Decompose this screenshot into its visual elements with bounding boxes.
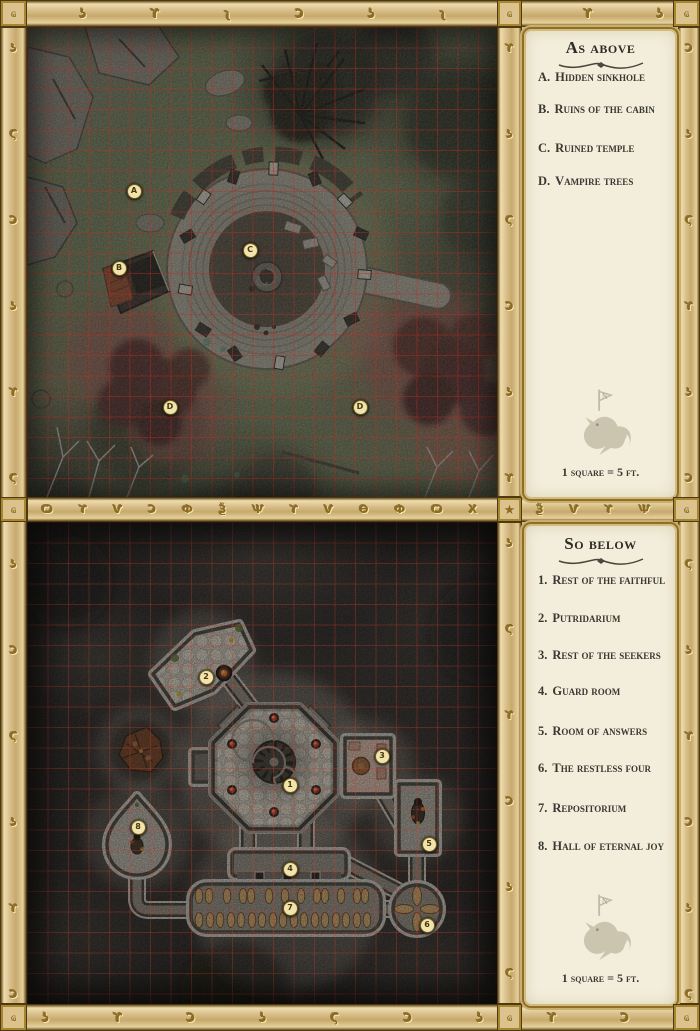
dragon-sigil-icon: N <box>571 890 631 962</box>
divider-below: ʖ Ϛ ϒ Ɔ ʖ Ϛ ϒ <box>497 522 522 1004</box>
corner-emblem-br: ҩ <box>673 1004 700 1031</box>
legend-item-d: D.Vampire trees <box>538 174 673 189</box>
map-marker-D: D <box>353 400 368 415</box>
scale-note-below: 1 square = 5 ft. <box>524 971 677 986</box>
corner-emblem-ml: ҩ <box>0 497 27 522</box>
panel-title-above: As above <box>524 38 677 58</box>
dungeon-map: 12345678 <box>27 522 497 1004</box>
map-marker-B: B <box>112 261 127 276</box>
corner-emblem-mr: ҩ <box>673 497 700 522</box>
map-marker-1: 1 <box>283 778 298 793</box>
map-marker-3: 3 <box>375 749 390 764</box>
map-marker-7: 7 <box>283 901 298 916</box>
legend-item-6: 6.The restless four <box>538 761 673 776</box>
map-marker-8: 8 <box>131 820 146 835</box>
map-marker-2: 2 <box>199 670 214 685</box>
map-marker-C: C <box>243 243 258 258</box>
legend-item-2: 2.Putridarium <box>538 611 673 626</box>
legend-item-8: 8.Hall of eternal joy <box>538 839 673 854</box>
top-runes: Ɔ ʅ ʖ ϒ ʅ Ɔ ʖ ʅ Ɔ ϒ ʖ ʅ <box>1 1 699 26</box>
legend-item-5: 5.Room of answers <box>538 724 673 739</box>
map-marker-A: A <box>127 184 142 199</box>
map-marker-D: D <box>163 400 178 415</box>
legend-item-3: 3.Rest of the seekers <box>538 648 673 663</box>
legend-item-4: 4.Guard room <box>538 684 673 699</box>
divider-above-runes: ϒ ʖ Ϛ Ɔ ʖ ϒ Ϛ <box>498 28 521 496</box>
overland-map-art <box>27 27 497 497</box>
frame-top-band: Ɔ ʅ ʖ ϒ ʅ Ɔ ʖ ʅ Ɔ ϒ ʖ ʅ <box>0 0 700 27</box>
legend-item-b: B.Ruins of the cabin <box>538 102 673 117</box>
corner-emblem-tm: ҩ <box>497 0 522 27</box>
legend-panel-above: As above A.Hidden sinkhole B.Ruins of th… <box>522 27 679 501</box>
title-flourish <box>553 555 649 567</box>
bottom-runes: Ͻ ʖ ϒ Ɔ ʖ Ϛ Ɔ ʖ ϒ Ɔ ʖ <box>1 1005 699 1030</box>
overland-map: ABCDD <box>27 27 497 497</box>
legend-item-c: C.Ruined temple <box>538 141 673 156</box>
legend-item-7: 7.Repositorium <box>538 801 673 816</box>
corner-emblem-bl: ҩ <box>0 1004 27 1031</box>
corner-emblem-tl: ҩ <box>0 0 27 27</box>
star-emblem: ★ <box>497 497 522 522</box>
corner-emblem-bm: ҩ <box>497 1004 522 1031</box>
frame-bottom-band: Ͻ ʖ ϒ Ɔ ʖ Ϛ Ɔ ʖ ϒ Ɔ ʖ <box>0 1004 700 1031</box>
middle-runes: Ѻ Х Ф ʎ Ѻ ϒ Ѵ Ɔ Ф Ѯ Ѱ ϒ Ѵ Ѳ Ф Ѻ Х ʎ Ѯ Ѵ … <box>28 498 677 521</box>
map-marker-6: 6 <box>420 918 435 933</box>
map-marker-5: 5 <box>422 837 437 852</box>
svg-text:N: N <box>601 897 607 906</box>
scale-note-above: 1 square = 5 ft. <box>524 465 677 480</box>
corner-emblem-tr: ҩ <box>673 0 700 27</box>
divider-below-runes: ʖ Ϛ ϒ Ɔ ʖ Ϛ ϒ <box>498 523 521 1003</box>
legend-item-a: A.Hidden sinkhole <box>538 70 673 85</box>
map-marker-4: 4 <box>283 862 298 877</box>
svg-text:N: N <box>601 392 607 401</box>
legend-panel-below: So below 1.Rest of the faithful 2.Putrid… <box>522 522 679 1008</box>
panel-title-below: So below <box>524 534 677 554</box>
battle-map-sheet: ABCDD <box>0 0 700 1031</box>
legend-item-1: 1.Rest of the faithful <box>538 573 673 588</box>
divider-above: ϒ ʖ Ϛ Ɔ ʖ ϒ Ϛ <box>497 27 522 497</box>
dragon-sigil-icon: N <box>571 385 631 457</box>
